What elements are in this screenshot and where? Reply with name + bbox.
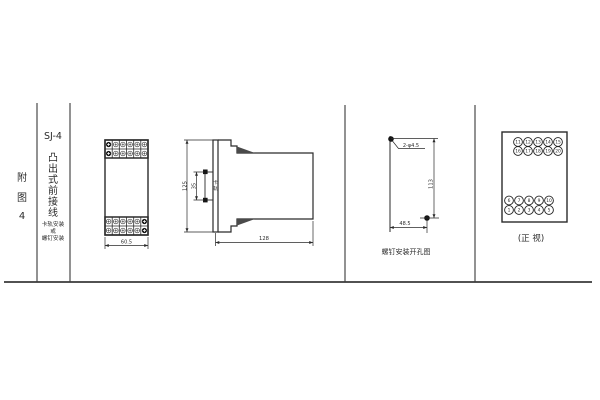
svg-text:18: 18	[535, 149, 541, 155]
mount-note-line: 或	[50, 227, 56, 235]
screw-icon	[142, 228, 147, 233]
drill-template-drawing: 2-φ4.5 113 48.5 螺钉安装开孔图	[382, 136, 440, 256]
screw-icon	[135, 142, 140, 147]
mount-note-line: 卡轨安装	[42, 220, 65, 228]
screw-icon	[106, 151, 111, 156]
screw-icon	[121, 219, 126, 224]
drill-height-dimension: 113	[429, 139, 435, 219]
terminal-number: 17	[524, 147, 533, 156]
type-char: 前	[48, 184, 58, 197]
sheet-frame	[4, 103, 592, 282]
terminal-number: 8	[525, 196, 534, 205]
screw-icon	[114, 228, 119, 233]
terminal-number: 1	[505, 206, 514, 215]
terminal-view-caption: (正 视)	[518, 233, 544, 244]
screw-icon	[142, 142, 147, 147]
latch-wedge	[237, 219, 255, 226]
terminal-number: 14	[544, 138, 553, 147]
screw-icon	[121, 151, 126, 156]
drill-view-caption: 螺钉安装开孔图	[382, 247, 431, 256]
technical-drawing: 附 图 4 SJ-4 凸 出 式 前 接 线 卡轨安装 或 螺钉安装	[0, 0, 600, 400]
figure-label: 附 图 4	[17, 171, 27, 222]
mount-note-line: 螺钉安装	[42, 234, 65, 242]
svg-text:13: 13	[535, 140, 541, 146]
screw-icon	[114, 219, 119, 224]
terminal-number: 15	[554, 138, 563, 147]
height-dim-text: 125	[183, 181, 189, 191]
drawing-sheet: 附 图 4 SJ-4 凸 出 式 前 接 线 卡轨安装 或 螺钉安装	[0, 0, 600, 400]
side-view-drawing: 卡 轨 35 125 128	[183, 140, 314, 246]
svg-text:15: 15	[555, 140, 561, 146]
svg-text:20: 20	[555, 149, 561, 155]
screw-icon	[128, 228, 133, 233]
screw-icon	[106, 219, 111, 224]
terminal-layout-drawing: 11 12 13 14 15 16 17 18 19 20 6 7 8 9 10…	[502, 132, 567, 244]
svg-text:7: 7	[518, 198, 521, 204]
svg-text:3: 3	[528, 208, 531, 214]
figure-label-char: 图	[17, 192, 27, 204]
screw-icon	[114, 142, 119, 147]
terminal-number: 12	[524, 138, 533, 147]
relay-side-outline	[218, 140, 313, 232]
svg-text:9: 9	[538, 198, 541, 204]
type-char: 接	[48, 195, 58, 208]
screw-icon	[128, 219, 133, 224]
terminal-number: 11	[514, 138, 523, 147]
svg-text:19: 19	[545, 149, 551, 155]
svg-text:12: 12	[525, 140, 531, 146]
svg-text:5: 5	[548, 208, 551, 214]
screw-icon	[142, 219, 147, 224]
height-dimension: 125	[183, 140, 214, 232]
screw-icon	[106, 228, 111, 233]
drill-width-dim-text: 48.5	[399, 221, 410, 227]
model-name: SJ-4	[44, 131, 62, 142]
terminal-number: 18	[534, 147, 543, 156]
terminal-number: 7	[515, 196, 524, 205]
screw-icon	[135, 151, 140, 156]
figure-label-char: 附	[17, 171, 27, 184]
svg-text:1: 1	[508, 208, 511, 214]
rail-slot-label-char: 轨	[213, 185, 218, 192]
terminal-number: 20	[554, 147, 563, 156]
top-terminal-strip	[105, 140, 148, 158]
screw-icon	[114, 151, 119, 156]
hole-note-text: 2-φ4.5	[403, 143, 419, 149]
type-char: 凸	[48, 152, 58, 164]
svg-text:6: 6	[508, 198, 511, 204]
rail-slot: 卡 轨	[203, 170, 218, 203]
svg-text:17: 17	[525, 149, 531, 155]
front-flange	[213, 140, 218, 232]
screw-icon	[128, 142, 133, 147]
screw-icon	[121, 228, 126, 233]
terminal-number: 16	[514, 147, 523, 156]
svg-text:11: 11	[515, 140, 521, 146]
terminal-number: 9	[535, 196, 544, 205]
svg-text:2: 2	[518, 208, 521, 214]
screw-icon	[121, 142, 126, 147]
drill-width-dimension: 48.5	[390, 220, 427, 233]
screw-icon	[135, 228, 140, 233]
terminal-circles: 11 12 13 14 15 16 17 18 19 20 6 7 8 9 10…	[505, 138, 563, 215]
depth-dimension: 128	[216, 221, 314, 246]
terminal-number: 19	[544, 147, 553, 156]
terminal-number: 3	[525, 206, 534, 215]
hole-note: 2-φ4.5	[393, 141, 426, 149]
type-char: 出	[48, 162, 58, 175]
terminal-number: 13	[534, 138, 543, 147]
svg-text:4: 4	[538, 208, 541, 214]
front-width-dimension: 60.5	[105, 237, 148, 249]
front-view-drawing: 60.5	[105, 140, 148, 249]
type-char: 线	[48, 206, 58, 219]
rail-slot-dimension: 35	[192, 172, 205, 200]
screw-icon	[106, 142, 111, 147]
svg-text:14: 14	[545, 140, 551, 146]
terminal-number: 6	[505, 196, 514, 205]
screw-icon	[128, 151, 133, 156]
bottom-terminal-strip	[105, 217, 148, 235]
model-title: SJ-4 凸 出 式 前 接 线 卡轨安装 或 螺钉安装	[42, 131, 65, 242]
screw-icon	[142, 151, 147, 156]
terminal-number: 5	[545, 206, 554, 215]
mounting-hole	[388, 136, 394, 142]
terminal-number: 4	[535, 206, 544, 215]
svg-text:10: 10	[546, 198, 552, 204]
width-dim-text: 60.5	[121, 240, 132, 246]
depth-dim-text: 128	[259, 236, 269, 242]
rail-slot-label-char: 卡	[213, 179, 218, 186]
svg-text:8: 8	[528, 198, 531, 204]
svg-text:16: 16	[515, 149, 521, 155]
rail-slot-dim-text: 35	[192, 183, 198, 189]
screw-icon	[135, 219, 140, 224]
terminal-number: 2	[515, 206, 524, 215]
terminal-number: 10	[545, 196, 554, 205]
drill-height-dim-text: 113	[429, 179, 435, 189]
type-char: 式	[48, 173, 58, 186]
latch-wedge	[237, 147, 255, 154]
figure-label-char: 4	[19, 211, 25, 222]
